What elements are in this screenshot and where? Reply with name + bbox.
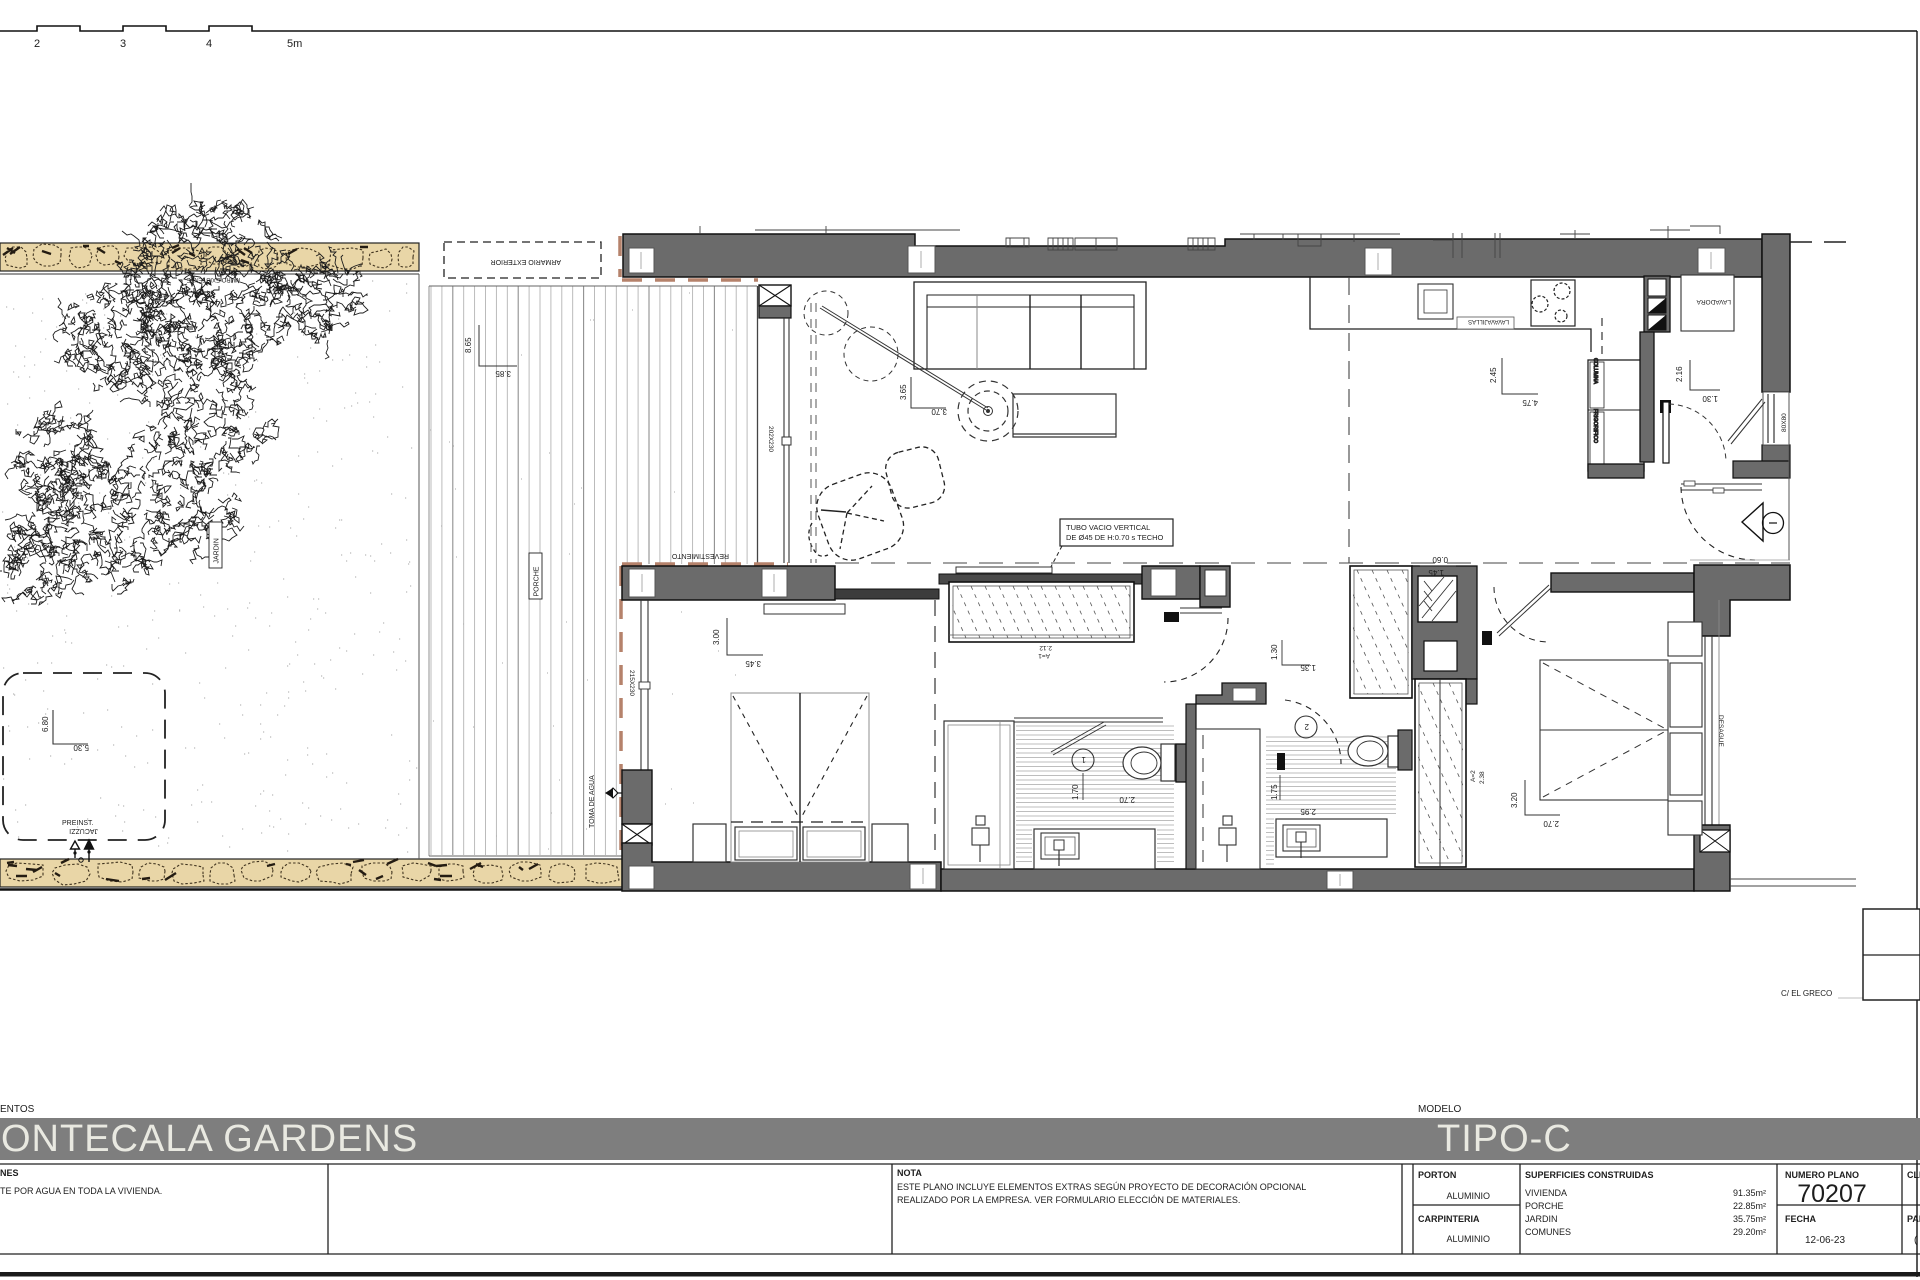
svg-text:4.75: 4.75 (1522, 398, 1538, 407)
svg-text:CARPINTERIA: CARPINTERIA (1418, 1214, 1480, 1224)
svg-text:A=1: A=1 (1038, 652, 1050, 659)
svg-text:SUPERFICIES CONSTRUIDAS: SUPERFICIES CONSTRUIDAS (1525, 1170, 1654, 1180)
svg-text:3.45: 3.45 (745, 659, 761, 668)
svg-text:DE Ø45 DE H:0.70 s TECHO: DE Ø45 DE H:0.70 s TECHO (1066, 533, 1164, 542)
svg-text:PORCHE: PORCHE (1525, 1201, 1564, 1211)
svg-text:8.65: 8.65 (464, 337, 473, 353)
svg-text:3.20: 3.20 (1510, 792, 1519, 808)
svg-text:3.00: 3.00 (712, 629, 721, 645)
svg-text:2.45: 2.45 (1489, 367, 1498, 383)
svg-text:80X80: 80X80 (1781, 413, 1788, 432)
svg-text:3.65: 3.65 (899, 384, 908, 400)
svg-text:COLUMNA: COLUMNA (1592, 358, 1598, 384)
svg-text:1.45: 1.45 (1428, 568, 1444, 577)
svg-text:1.75: 1.75 (1270, 784, 1279, 800)
svg-text:NOTA: NOTA (897, 1168, 922, 1178)
svg-text:3.85: 3.85 (495, 369, 511, 378)
svg-text:2.95: 2.95 (1300, 807, 1316, 816)
svg-text:3.70: 3.70 (931, 407, 947, 416)
svg-text:ENTOS: ENTOS (0, 1104, 35, 1115)
svg-text:2.16: 2.16 (1675, 366, 1684, 382)
svg-text:REVESTIMIENTO: REVESTIMIENTO (671, 552, 729, 559)
svg-text:PORTON: PORTON (1418, 1170, 1456, 1180)
svg-text:JARDIN: JARDIN (1525, 1214, 1558, 1224)
svg-text:VIVIENDA: VIVIENDA (1525, 1188, 1567, 1198)
svg-text:6.80: 6.80 (41, 716, 50, 732)
svg-text:2.12: 2.12 (1039, 644, 1052, 651)
svg-text:ALUMINIO: ALUMINIO (1446, 1234, 1490, 1244)
svg-text:LAVADORA: LAVADORA (1696, 298, 1731, 305)
svg-text:12-06-23: 12-06-23 (1805, 1235, 1845, 1246)
svg-text:ONTECALA GARDENS: ONTECALA GARDENS (1, 1118, 418, 1160)
svg-text:29.20m²: 29.20m² (1733, 1227, 1766, 1237)
svg-text:TIPO-C: TIPO-C (1437, 1118, 1572, 1160)
svg-text:1.30: 1.30 (1702, 394, 1718, 403)
svg-text:215X230: 215X230 (628, 670, 635, 696)
svg-text:22.85m²: 22.85m² (1733, 1201, 1766, 1211)
svg-text:FRIGORIFICO: FRIGORIFICO (1592, 409, 1598, 443)
svg-text:202X230: 202X230 (767, 426, 774, 452)
svg-text:1.35: 1.35 (1300, 663, 1316, 672)
svg-text:ESTE PLANO INCLUYE ELEMENTOS E: ESTE PLANO INCLUYE ELEMENTOS EXTRAS SEGÚ… (897, 1182, 1306, 1192)
svg-text:ARMARIO EXTERIOR: ARMARIO EXTERIOR (491, 258, 561, 265)
svg-text:CLIEN: CLIEN (1907, 1170, 1920, 1180)
svg-text:DESAGUE: DESAGUE (1717, 715, 1724, 747)
svg-text:C/ EL GRECO: C/ EL GRECO (1781, 989, 1832, 998)
svg-text:1: 1 (1081, 755, 1086, 764)
svg-text:5.30: 5.30 (73, 743, 89, 752)
svg-text:NES: NES (0, 1168, 19, 1178)
svg-text:REALIZADO POR LA EMPRESA. VER: REALIZADO POR LA EMPRESA. VER FORMULARIO… (897, 1195, 1240, 1205)
svg-text:LAVAVAJILLAS: LAVAVAJILLAS (1468, 318, 1509, 324)
svg-text:NUMERO PLANO: NUMERO PLANO (1785, 1170, 1859, 1180)
svg-text:2: 2 (1304, 722, 1309, 731)
svg-text:JACUZZI: JACUZZI (69, 827, 98, 834)
svg-text:1.30: 1.30 (1270, 644, 1279, 660)
svg-text:PORCHE: PORCHE (534, 566, 541, 596)
svg-text:3: 3 (120, 38, 126, 50)
svg-text:70207: 70207 (1797, 1180, 1867, 1208)
svg-text:PREINST.: PREINST. (62, 820, 94, 827)
svg-text:2.38: 2.38 (1479, 771, 1486, 784)
svg-text:JARDIN: JARDIN (214, 538, 221, 563)
svg-text:2.70: 2.70 (1543, 819, 1559, 828)
svg-text:TE POR AGUA EN TODA LA VIVIEND: TE POR AGUA EN TODA LA VIVIENDA. (0, 1186, 162, 1196)
svg-text:TOMA DE AGUA: TOMA DE AGUA (589, 775, 596, 828)
svg-text:2.70: 2.70 (1119, 795, 1135, 804)
svg-text:COMUNES: COMUNES (1525, 1227, 1571, 1237)
svg-text:5m: 5m (287, 38, 302, 50)
svg-text:ALUMINIO: ALUMINIO (1446, 1191, 1490, 1201)
svg-text:PARC: PARC (1907, 1214, 1920, 1224)
svg-text:MODELO: MODELO (1418, 1104, 1462, 1115)
svg-text:A=2: A=2 (1470, 770, 1477, 782)
svg-text:1.70: 1.70 (1071, 784, 1080, 800)
svg-text:0.60: 0.60 (1432, 555, 1448, 564)
svg-text:TUBO VACIO VERTICAL: TUBO VACIO VERTICAL (1066, 523, 1150, 532)
svg-text:35.75m²: 35.75m² (1733, 1214, 1766, 1224)
svg-text:2: 2 (34, 38, 40, 50)
svg-text:91.35m²: 91.35m² (1733, 1188, 1766, 1198)
svg-text:FECHA: FECHA (1785, 1214, 1816, 1224)
svg-text:4: 4 (206, 38, 212, 50)
